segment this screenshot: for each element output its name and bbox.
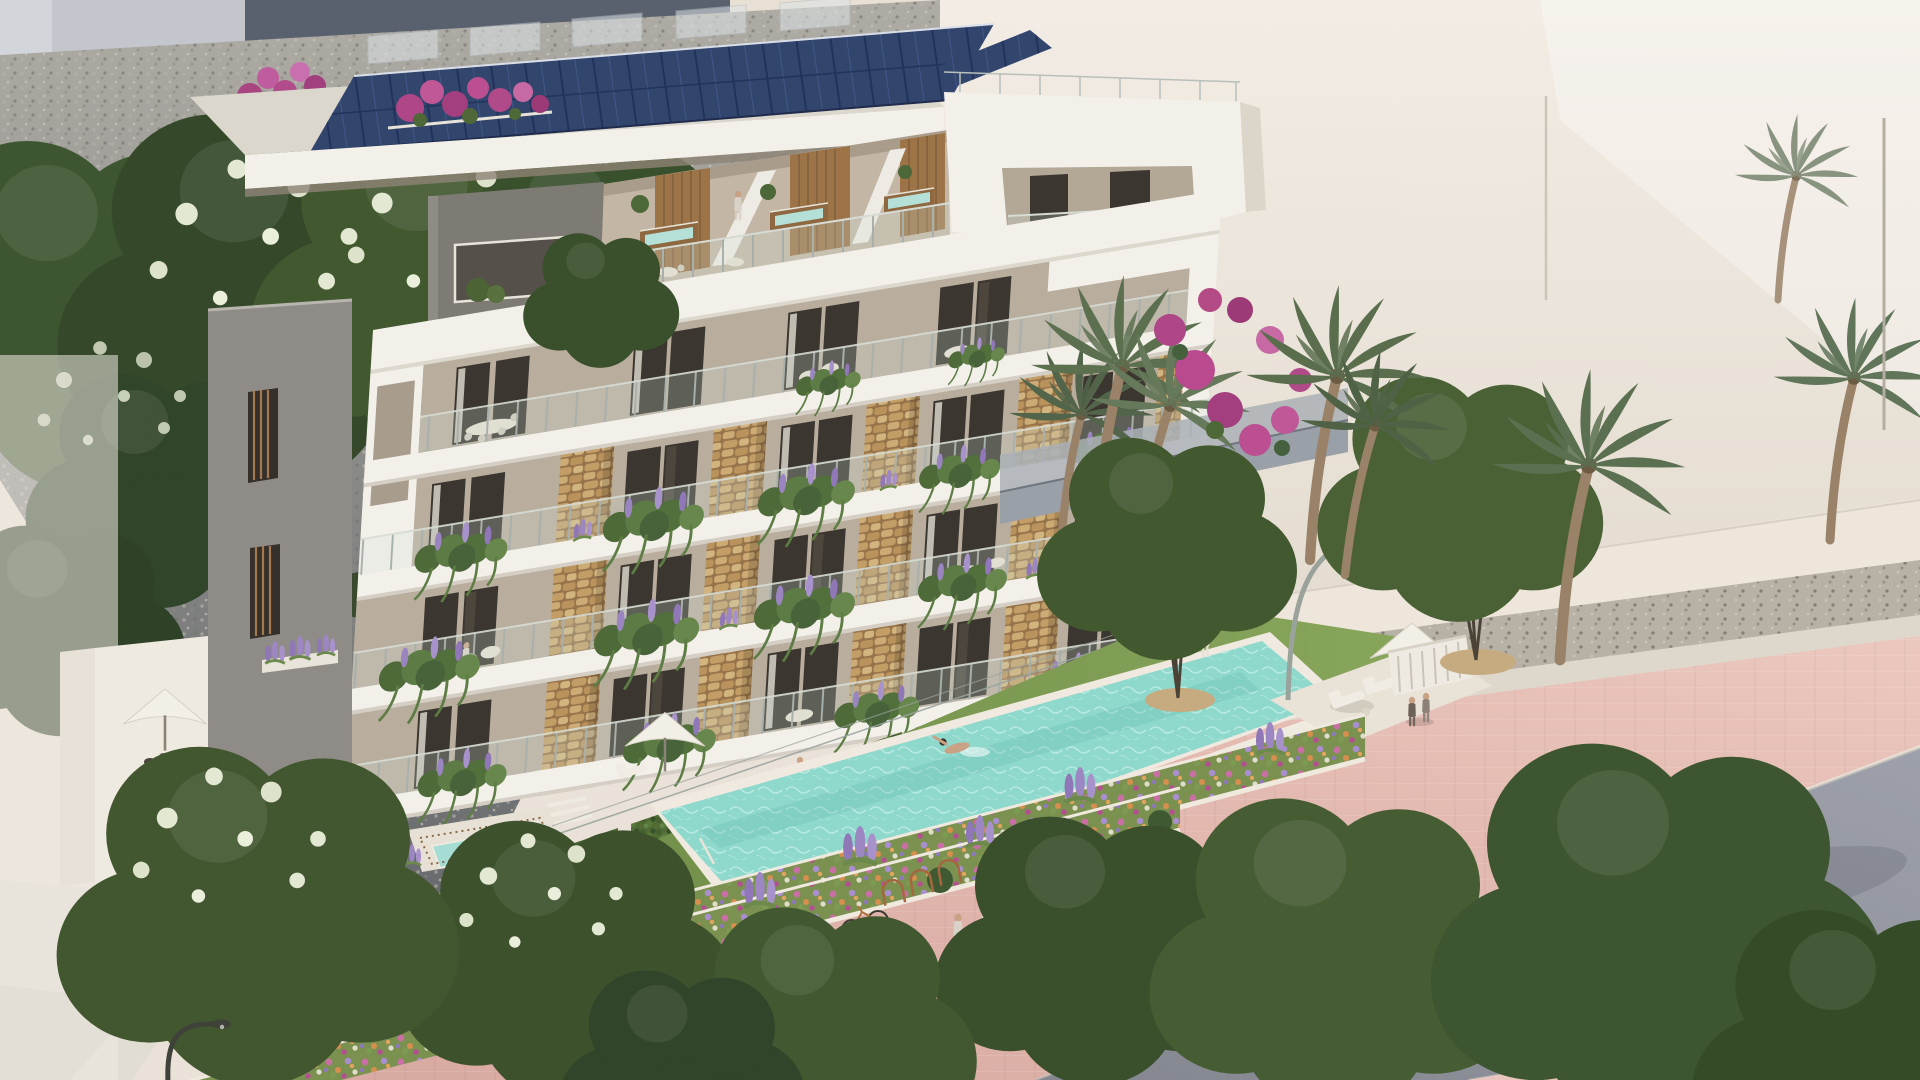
architectural-rendering: [0, 0, 1920, 1080]
render-canvas: [0, 0, 1920, 1080]
